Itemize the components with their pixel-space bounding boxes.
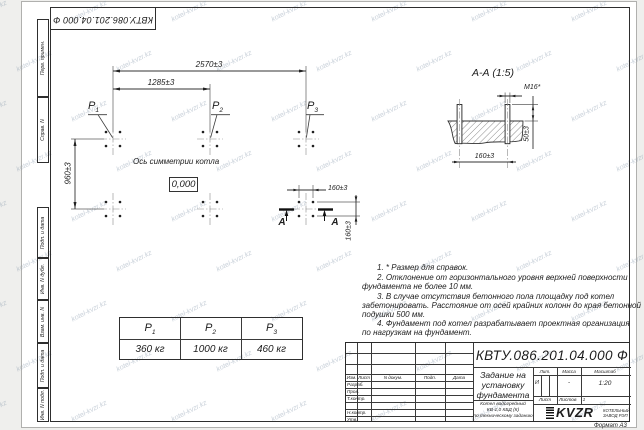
col-list: Лист <box>357 375 371 380</box>
mass-value: - <box>557 380 581 386</box>
note-line: фундамента не более 10 мм. <box>362 283 473 292</box>
col-ndoc: N докум. <box>371 375 415 380</box>
title-block-doc-number: КВТУ.086.201.04.000 Ф <box>473 348 631 363</box>
col-data: Дата <box>445 375 473 380</box>
section-title: А-А (1:5) <box>462 68 524 80</box>
sheets-value: 1 <box>579 398 589 403</box>
row-nkontr: Н.контр. <box>347 410 371 415</box>
product-line1: Котел водогрейный <box>473 402 533 407</box>
sheet-label: Лист <box>533 398 557 403</box>
dim-160-horizontal: 160±3 <box>328 185 347 193</box>
company-line1: КОТЕЛЬНЫЙ <box>603 408 631 413</box>
row-tkontr: Т.контр. <box>347 396 371 401</box>
table-value-p2: 1000 кг <box>180 344 241 355</box>
lit-value: И <box>533 380 541 386</box>
note-line: 1. * Размер для справок. <box>377 264 468 273</box>
company-line2: ЗАВОД РЭП <box>603 413 631 418</box>
row-utv: Утв. <box>347 417 371 422</box>
section-letter-right: А <box>328 217 342 228</box>
doc-title-line3: фундамента <box>473 390 533 400</box>
title-block: Изм. Лист N докум. Подп. Дата Разраб. Пр… <box>345 342 630 422</box>
boiler-symmetry-axis-label: Ось симметрии котла <box>133 158 217 167</box>
table-header-p2: P2 <box>180 322 241 336</box>
load-label-p3: P3 <box>307 100 318 114</box>
section-letter-left: А <box>275 217 289 228</box>
table-header-p3: P3 <box>241 322 302 336</box>
scale-value: 1:20 <box>581 380 629 387</box>
note-line: по нагрузкам на фундамент. <box>362 329 472 338</box>
mass-header: Масса <box>557 369 581 374</box>
load-label-p1: P1 <box>88 100 99 114</box>
doc-title-line2: установку <box>473 380 533 390</box>
table-header-p1: P1 <box>120 322 180 336</box>
loads-table: P1 P2 P3 360 кг 1000 кг 460 кг <box>119 317 303 360</box>
dim-960: 960±3 <box>65 156 74 190</box>
row-razrab: Разраб. <box>347 382 371 387</box>
col-podp: Подп. <box>415 375 445 380</box>
product-line3: по техническому заданию <box>473 414 533 419</box>
product-line2: КВ-1,0 КБД (К) <box>473 408 533 413</box>
doc-title-line1: Задание на <box>473 370 533 380</box>
dim-160-vertical: 160±3 <box>346 215 354 246</box>
dim-50: 50±3 <box>524 118 532 149</box>
lit-header: Лит. <box>533 369 557 374</box>
table-value-p1: 360 кг <box>120 344 180 355</box>
company-name: KVZR <box>556 405 602 420</box>
dim-1285: 1285±3 <box>131 79 191 88</box>
col-izm: Изм. <box>346 375 357 380</box>
sheets-label: Листов <box>559 398 579 403</box>
kvzr-logo-icon <box>546 407 554 419</box>
load-label-p2: P2 <box>212 100 223 114</box>
dim-2570: 2570±3 <box>179 61 239 70</box>
bolt-thread-label: М16* <box>524 84 540 92</box>
format-label: Формат А3 <box>594 423 627 430</box>
row-prov: Пров. <box>347 389 371 394</box>
dim-160-section: 160±3 <box>469 153 500 161</box>
elevation-mark: 0,000 <box>169 177 198 192</box>
table-value-p3: 460 кг <box>241 344 302 355</box>
scale-header: Масштаб <box>581 369 629 374</box>
